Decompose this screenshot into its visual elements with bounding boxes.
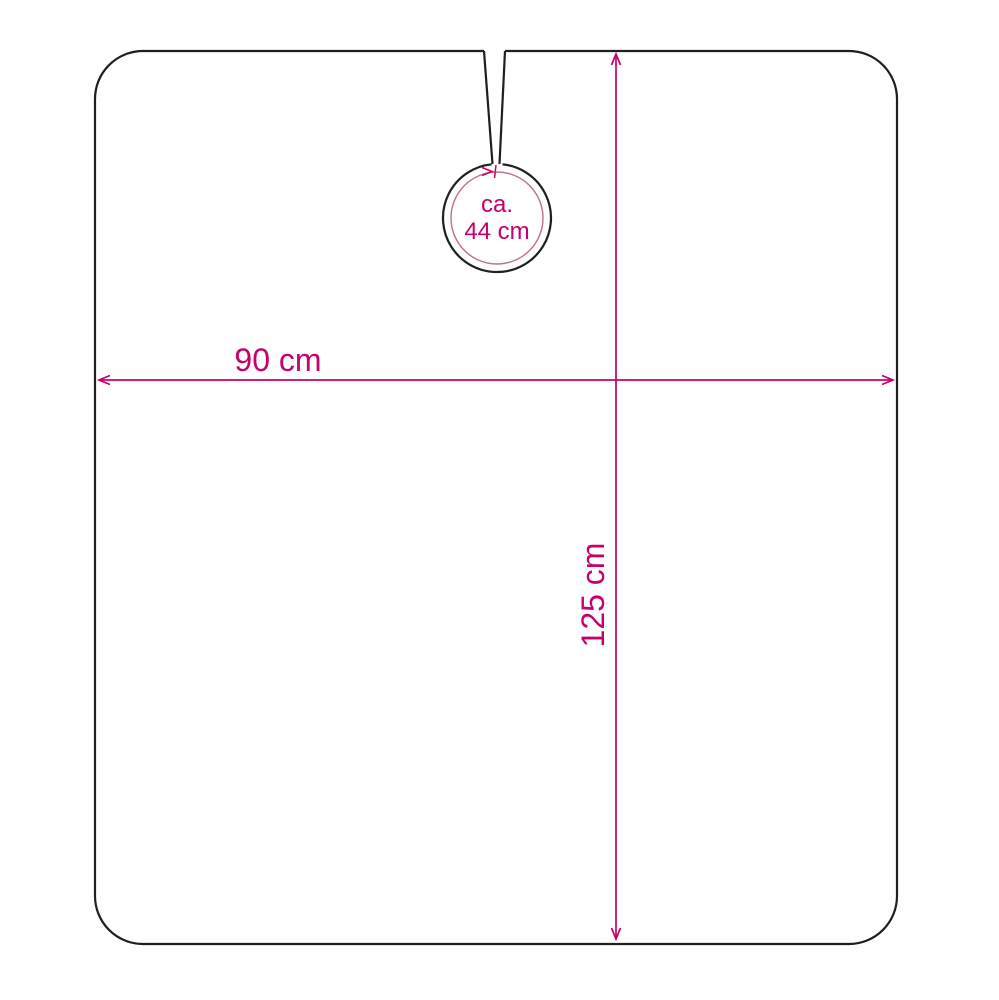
- height-label: 125 cm: [575, 543, 611, 648]
- neck-label-line2: 44 cm: [464, 218, 529, 245]
- neck-label-line1: ca.: [481, 191, 513, 218]
- cape-outline: [95, 51, 897, 944]
- circumference-tick: [495, 165, 497, 178]
- neck-slit-left: [484, 51, 493, 164]
- diagram-canvas: ca. 44 cm 90 cm 125 cm: [0, 0, 999, 1000]
- width-label: 90 cm: [234, 342, 321, 378]
- circumference-arrowhead-icon: [482, 168, 492, 176]
- neck-slit-right: [500, 51, 506, 164]
- cape-dimension-diagram: ca. 44 cm 90 cm 125 cm: [0, 0, 999, 1000]
